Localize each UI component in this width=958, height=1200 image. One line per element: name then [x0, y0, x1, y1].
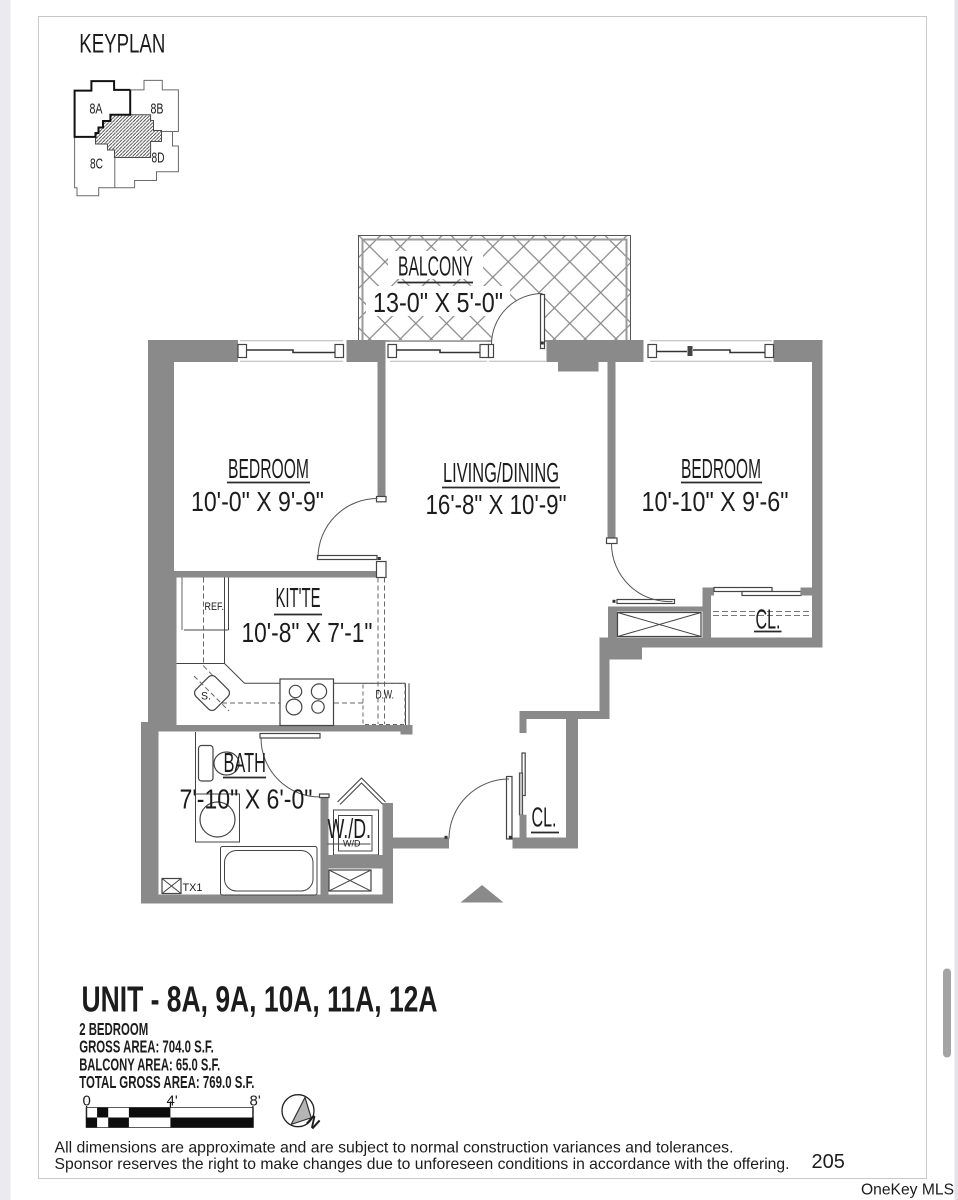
- svg-text:8': 8': [250, 1093, 261, 1110]
- svg-text:S.: S.: [201, 691, 211, 703]
- svg-text:TX1: TX1: [183, 882, 203, 894]
- svg-text:All dimensions are approximate: All dimensions are approximate and are s…: [55, 1140, 734, 1157]
- svg-text:8B: 8B: [151, 101, 164, 118]
- svg-text:CL.: CL.: [532, 802, 557, 833]
- svg-text:8A: 8A: [90, 101, 103, 118]
- svg-text:LIVING/DINING: LIVING/DINING: [443, 457, 559, 488]
- svg-text:CL.: CL.: [756, 604, 781, 635]
- svg-text:REF.: REF.: [205, 601, 225, 613]
- svg-text:D.W.: D.W.: [376, 688, 395, 702]
- svg-text:BEDROOM: BEDROOM: [681, 453, 761, 484]
- svg-text:8C: 8C: [90, 156, 103, 173]
- svg-text:10'-8" X 7'-1": 10'-8" X 7'-1": [242, 617, 373, 648]
- svg-text:7'-10" X 6'-0": 7'-10" X 6'-0": [180, 784, 313, 815]
- svg-text:13-0" X 5'-0": 13-0" X 5'-0": [373, 287, 503, 318]
- svg-text:BATH: BATH: [224, 747, 267, 778]
- svg-text:OneKey MLS: OneKey MLS: [861, 1182, 954, 1199]
- svg-text:UNIT - 8A, 9A, 10A, 11A, 12A: UNIT - 8A, 9A, 10A, 11A, 12A: [82, 979, 438, 1020]
- svg-text:205: 205: [812, 1151, 845, 1173]
- svg-text:TOTAL GROSS AREA: 769.0 S.F.: TOTAL GROSS AREA: 769.0 S.F.: [79, 1072, 254, 1092]
- svg-text:10'-0" X 9'-9": 10'-0" X 9'-9": [191, 486, 324, 517]
- svg-text:10'-10" X 9'-6": 10'-10" X 9'-6": [642, 486, 789, 517]
- svg-text:KIT'TE: KIT'TE: [276, 582, 321, 613]
- svg-text:KEYPLAN: KEYPLAN: [79, 29, 165, 59]
- svg-text:8D: 8D: [152, 150, 165, 167]
- svg-text:16'-8" X 10'-9": 16'-8" X 10'-9": [426, 489, 567, 520]
- svg-text:Sponsor reserves the right to: Sponsor reserves the right to make chang…: [55, 1156, 790, 1173]
- svg-text:W/D: W/D: [343, 839, 361, 850]
- svg-text:4': 4': [167, 1093, 178, 1110]
- svg-text:BEDROOM: BEDROOM: [228, 453, 309, 484]
- svg-text:BALCONY: BALCONY: [398, 251, 473, 282]
